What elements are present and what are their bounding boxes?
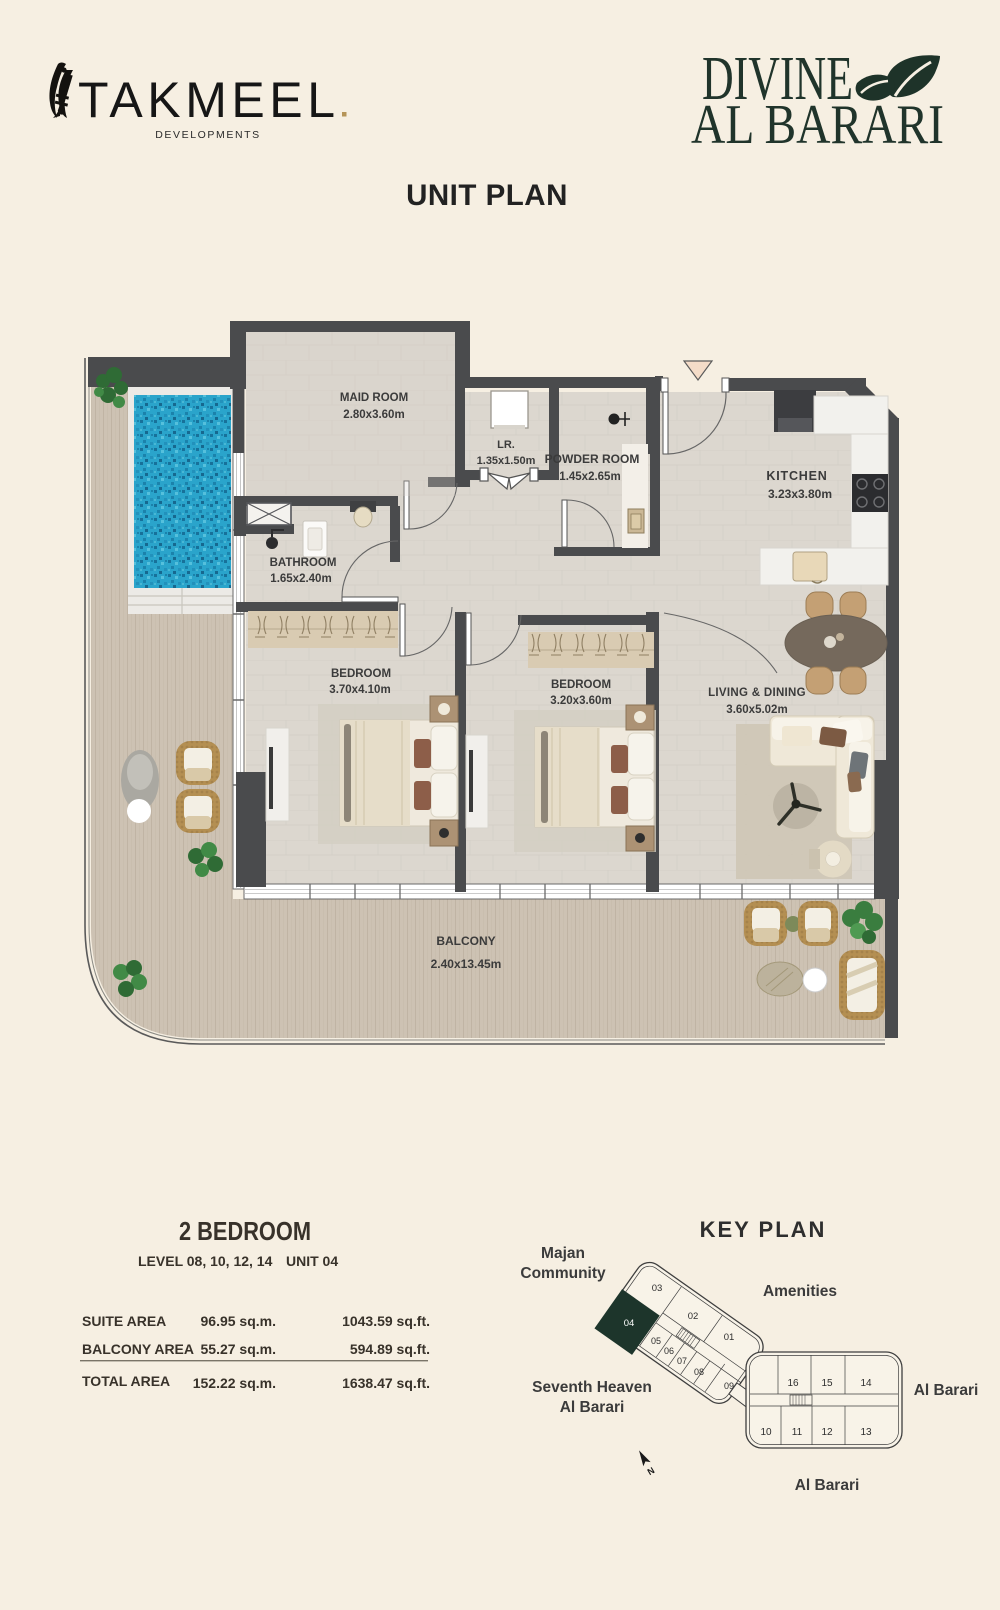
svg-text:TOTAL AREA: TOTAL AREA (82, 1373, 170, 1389)
svg-text:2 BEDROOM: 2 BEDROOM (179, 1216, 311, 1246)
svg-text:Al Barari: Al Barari (560, 1399, 625, 1416)
svg-text:Seventh Heaven: Seventh Heaven (532, 1379, 652, 1396)
svg-text:UNIT 04: UNIT 04 (286, 1253, 338, 1269)
svg-text:11: 11 (792, 1427, 803, 1438)
svg-text:Al Barari: Al Barari (795, 1477, 860, 1494)
svg-text:SUITE AREA: SUITE AREA (82, 1313, 166, 1329)
svg-text:BALCONY AREA: BALCONY AREA (82, 1341, 194, 1357)
svg-text:01: 01 (724, 1332, 735, 1343)
svg-text:07: 07 (677, 1356, 687, 1366)
svg-text:10: 10 (760, 1427, 772, 1438)
svg-text:Amenities: Amenities (763, 1283, 837, 1300)
svg-text:KEY PLAN: KEY PLAN (700, 1217, 827, 1242)
svg-text:16: 16 (787, 1378, 799, 1389)
svg-text:UNIT PLAN: UNIT PLAN (406, 179, 568, 212)
svg-text:12: 12 (821, 1427, 833, 1438)
svg-text:08: 08 (694, 1367, 704, 1377)
svg-text:14: 14 (860, 1378, 872, 1389)
svg-text:1.45x2.65m: 1.45x2.65m (559, 471, 620, 483)
svg-text:BEDROOM: BEDROOM (331, 668, 391, 680)
svg-text:POWDER ROOM: POWDER ROOM (545, 452, 640, 466)
svg-text:Community: Community (520, 1265, 606, 1282)
svg-text:1.35x1.50m: 1.35x1.50m (477, 455, 536, 467)
svg-text:3.23x3.80m: 3.23x3.80m (768, 487, 832, 501)
svg-text:KITCHEN: KITCHEN (766, 469, 827, 483)
svg-text:13: 13 (860, 1427, 872, 1438)
svg-text:15: 15 (821, 1378, 833, 1389)
svg-text:LR.: LR. (497, 439, 515, 451)
svg-text:LIVING & DINING: LIVING & DINING (708, 687, 806, 699)
svg-text:02: 02 (688, 1311, 699, 1322)
svg-text:TAKMEEL: TAKMEEL (78, 72, 335, 128)
svg-text:594.89 sq.ft.: 594.89 sq.ft. (350, 1341, 430, 1357)
svg-text:BALCONY: BALCONY (436, 934, 495, 948)
svg-text:2.40x13.45m: 2.40x13.45m (431, 957, 502, 971)
svg-text:1043.59 sq.ft.: 1043.59 sq.ft. (342, 1313, 430, 1329)
svg-text:Majan: Majan (541, 1245, 585, 1262)
svg-text:3.20x3.60m: 3.20x3.60m (550, 695, 611, 707)
svg-text:BATHROOM: BATHROOM (270, 557, 337, 569)
svg-text:1638.47 sq.ft.: 1638.47 sq.ft. (342, 1375, 430, 1391)
svg-text:96.95 sq.m.: 96.95 sq.m. (201, 1313, 277, 1329)
svg-text:AL BARARI: AL BARARI (691, 94, 944, 156)
svg-text:3.70x4.10m: 3.70x4.10m (329, 684, 390, 696)
svg-text:152.22 sq.m.: 152.22 sq.m. (193, 1375, 276, 1391)
svg-text:55.27 sq.m.: 55.27 sq.m. (201, 1341, 277, 1357)
svg-text:BEDROOM: BEDROOM (551, 679, 611, 691)
svg-text:06: 06 (664, 1346, 674, 1356)
svg-text:04: 04 (624, 1318, 635, 1329)
svg-text:LEVEL 08, 10, 12, 14: LEVEL 08, 10, 12, 14 (138, 1253, 273, 1269)
svg-text:2.80x3.60m: 2.80x3.60m (343, 409, 404, 421)
svg-text:03: 03 (652, 1283, 663, 1294)
svg-text:1.65x2.40m: 1.65x2.40m (270, 573, 331, 585)
svg-text:Al Barari: Al Barari (914, 1382, 979, 1399)
svg-text:3.60x5.02m: 3.60x5.02m (726, 704, 787, 716)
svg-text:DEVELOPMENTS: DEVELOPMENTS (155, 129, 261, 141)
svg-text:05: 05 (651, 1336, 661, 1346)
svg-text:MAID ROOM: MAID ROOM (340, 392, 408, 404)
